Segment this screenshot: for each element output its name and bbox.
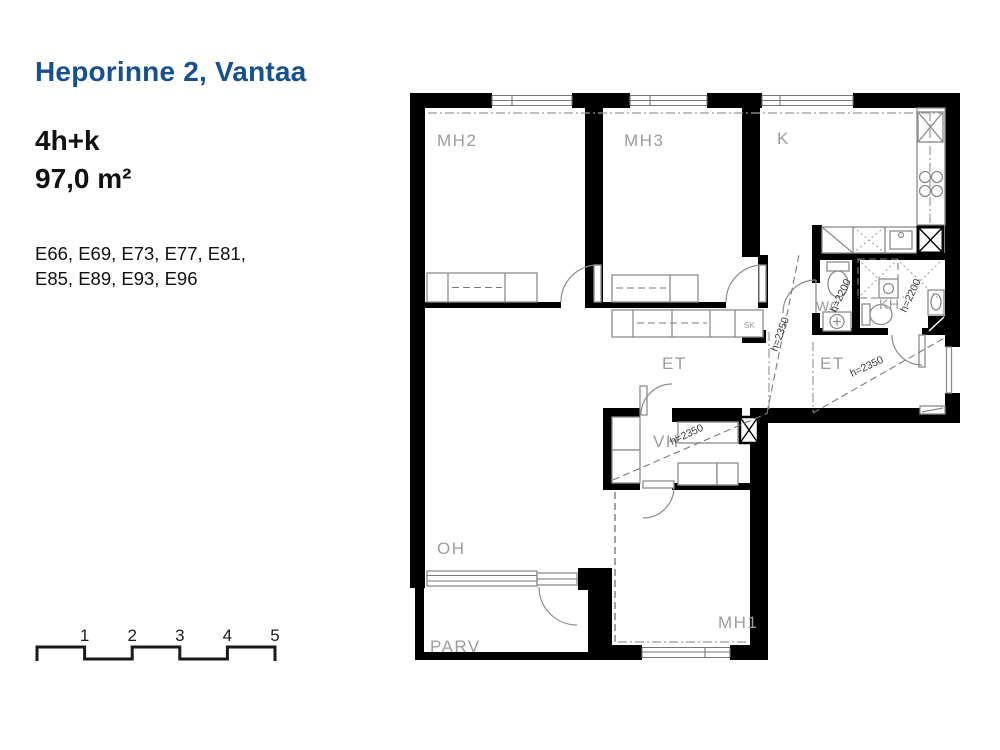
wc-sink-icon xyxy=(823,312,851,331)
ceiling-lines xyxy=(428,113,946,643)
height-annotation-et: h=2350 xyxy=(769,316,792,353)
kh-corner-pier xyxy=(928,316,945,332)
vh-shelves xyxy=(612,417,738,485)
kh-shower-icon xyxy=(858,259,898,298)
room-label-mh3: MH3 xyxy=(624,131,664,150)
room-label-mh2: MH2 xyxy=(437,131,477,150)
mh2-door-leaf xyxy=(594,265,601,302)
floor-plan-page: Heporinne 2, Vantaa 4h+k 97,0 m² E66, E6… xyxy=(0,0,1000,750)
floor-plan-drawing: MH2 MH3 K WC KH ET ET VH OH PARV MH1 SK … xyxy=(0,0,1000,750)
kitchen-counter-right xyxy=(917,108,945,225)
mh1-door-arc xyxy=(643,487,674,518)
scale-tick-4: 4 xyxy=(223,626,232,645)
kh-door-arc xyxy=(892,335,922,365)
scale-tick-5: 5 xyxy=(270,626,279,645)
kitchen-sink-icon xyxy=(890,231,912,249)
scale-tick-3: 3 xyxy=(175,626,184,645)
room-label-mh1: MH1 xyxy=(718,613,758,632)
height-annotation-entry: h=2350 xyxy=(848,354,885,380)
mh2-wardrobe xyxy=(427,273,537,302)
windows xyxy=(427,93,960,660)
room-label-parv: PARV xyxy=(430,637,481,656)
closet-label-sk: SK xyxy=(744,321,755,330)
room-label-k: K xyxy=(777,129,790,148)
mh3-wardrobe xyxy=(612,275,698,302)
room-label-oh: OH xyxy=(437,539,466,558)
kh-sink-icon xyxy=(928,290,944,315)
mh3-door-arc xyxy=(726,265,763,302)
vent-shaft-kitchen xyxy=(918,227,943,253)
room-label-et-entry: ET xyxy=(820,354,845,373)
wc-door-arc xyxy=(783,280,816,313)
room-label-kh: KH xyxy=(879,296,899,312)
scale-bar: 1 2 3 4 5 xyxy=(37,626,280,661)
scale-tick-1: 1 xyxy=(80,626,89,645)
hall-closets xyxy=(612,310,763,337)
room-label-et-upper: ET xyxy=(662,354,687,373)
mh3-door-leaf xyxy=(759,265,766,302)
scale-tick-2: 2 xyxy=(127,626,136,645)
height-annotation-kh: h=2200 xyxy=(898,277,924,314)
mh1-door-leaf xyxy=(643,481,674,488)
kitchen-counter-bottom xyxy=(822,227,918,253)
